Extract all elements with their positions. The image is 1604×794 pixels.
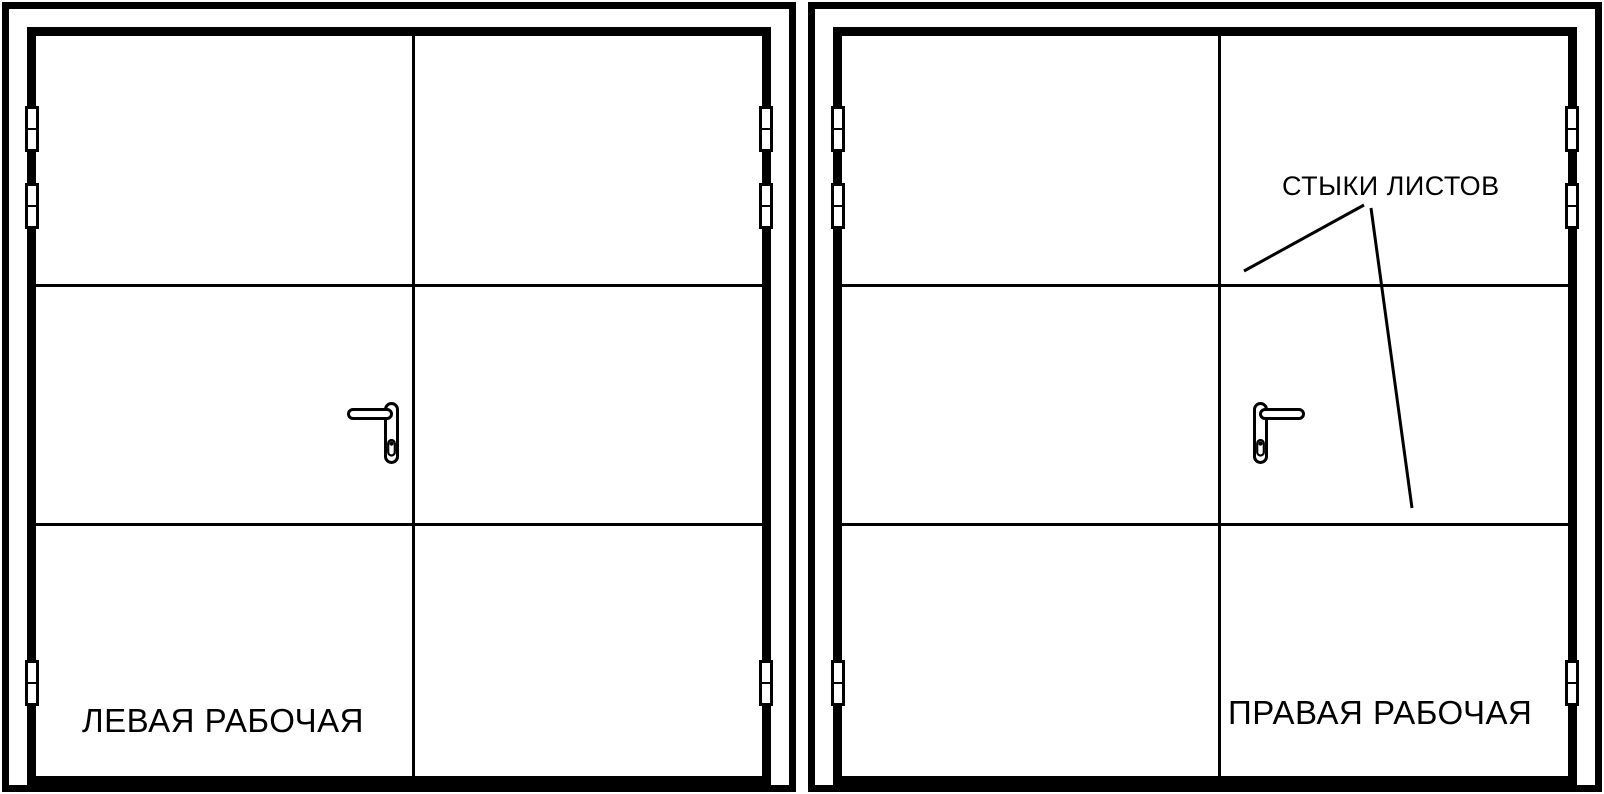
hinge-icon [831, 183, 845, 229]
hinge-icon [759, 106, 773, 152]
door-handle-icon [1253, 402, 1305, 464]
door-leaves-area: ЛЕВАЯ РАБОЧАЯ [36, 36, 762, 776]
door-label: ПРАВАЯ РАБОЧАЯ [1228, 696, 1532, 729]
sheet-joint-line-lower [36, 523, 762, 526]
annotation-sheet-joints: СТЫКИ ЛИСТОВ [1282, 173, 1500, 200]
door-frame: ЛЕВАЯ РАБОЧАЯ [27, 27, 771, 785]
hinge-icon [25, 106, 39, 152]
door-label: ЛЕВАЯ РАБОЧАЯ [82, 704, 364, 737]
hinge-icon [759, 660, 773, 706]
hinge-icon [831, 660, 845, 706]
door-diagram-left-active: ЛЕВАЯ РАБОЧАЯ [2, 2, 796, 792]
technical-drawing: ЛЕВАЯ РАБОЧАЯ [0, 0, 1604, 794]
door-leaves-area: СТЫКИ ЛИСТОВ ПРАВАЯ РАБОЧАЯ [842, 36, 1568, 776]
hinge-icon [831, 106, 845, 152]
hinge-icon [1565, 106, 1579, 152]
door-frame: СТЫКИ ЛИСТОВ ПРАВАЯ РАБОЧАЯ [833, 27, 1577, 785]
door-diagram-right-active: СТЫКИ ЛИСТОВ ПРАВАЯ РАБОЧАЯ [808, 2, 1602, 792]
hinge-icon [759, 183, 773, 229]
hinge-icon [25, 660, 39, 706]
annotation-leader-lines [842, 36, 1568, 776]
hinge-icon [1565, 183, 1579, 229]
sheet-joint-line-upper [36, 284, 762, 287]
leaf-meeting-joint [412, 36, 415, 776]
hinge-icon [25, 183, 39, 229]
hinge-icon [1565, 660, 1579, 706]
door-handle-icon [347, 402, 399, 464]
